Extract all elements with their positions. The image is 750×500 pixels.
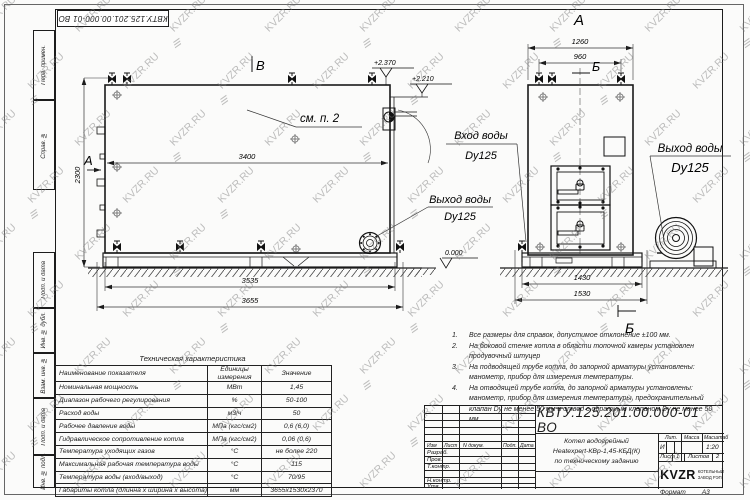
spec-table-cell: °С [208, 471, 262, 484]
spec-table-row: Номинальная мощностьМВт1,45 [56, 382, 332, 395]
company-name-line: ЗАВОД РЭП [698, 475, 724, 480]
crosshair-mark-icon [112, 208, 122, 218]
spec-table-cell: Гидравлическое сопротивление котла [56, 433, 208, 446]
tb-col-podp: Подп. [503, 443, 517, 449]
spec-table-cell: Максимальная рабочая температура воды [56, 458, 208, 471]
section-label-b-top: Б [592, 60, 600, 74]
tb-lit-value: И [660, 444, 665, 451]
spec-table-cell: Габариты котла (длинна х ширина х высота… [56, 484, 208, 497]
dim-3400: 3400 [239, 152, 257, 161]
elevation-mark-step: +2.210 [410, 76, 452, 97]
dim-960: 960 [574, 52, 587, 61]
spec-table-body: Номинальная мощностьМВт1,45Диапазон рабо… [56, 382, 332, 497]
company-logo: KVZR КОТЕЛЬНЫЙ ЗАВОД РЭП [660, 463, 722, 486]
tb-role-tkontr: Т.контр. [427, 464, 450, 470]
product-name: Котел водогрейный Heatexpert-КВр-1,45-КБ… [537, 435, 656, 469]
inlet-pipe-valve-icon [519, 241, 526, 253]
dim-1260: 1260 [572, 37, 590, 46]
title-block: КВТУ.125.201.00.000-01 ВО Котел водогрей… [424, 405, 723, 488]
spec-table-cell: м3/ч [208, 407, 262, 420]
dim-1430: 1430 [574, 273, 592, 282]
spec-table-cell: Температура воды (вход/выход) [56, 471, 208, 484]
spec-table-cell: мм [208, 484, 262, 497]
spec-table-cell: МПа (кгс/см2) [208, 420, 262, 433]
spec-table-cell: 70/95 [262, 471, 332, 484]
blower-fan-icon [650, 218, 716, 269]
note-number: 1. [452, 331, 469, 342]
see-note-label: см. п. 2 [300, 113, 340, 125]
spec-table-row: Температура уходящих газов°Сне более 220 [56, 445, 332, 458]
spec-table-cell: 115 [262, 458, 332, 471]
note-number: 3. [452, 363, 469, 384]
front-inlet-dn: Dy125 [465, 150, 498, 162]
spec-table-cell: Температура уходящих газов [56, 445, 208, 458]
dim-2300: 2300 [73, 166, 82, 185]
tb-sheets-value: 2 [716, 454, 719, 460]
tb-role-razrab: Разраб. [427, 450, 448, 456]
drain-valve-icon [177, 241, 184, 253]
crosshair-mark-icon [290, 134, 300, 144]
format-value: А3 [702, 489, 710, 496]
spec-table-cell: Диапазон рабочего регулирования [56, 394, 208, 407]
tb-col-data: Дата [520, 443, 534, 449]
spec-table-cell: 0,6 (6,0) [262, 420, 332, 433]
spec-table-title: Техническая характеристика [55, 354, 330, 363]
product-name-line: Heatexpert-КВр-1,45-КБД(К) [553, 447, 640, 457]
spec-table: Наименование показателя Единицы измерени… [55, 365, 332, 497]
format-note: Формат А3 [660, 489, 745, 496]
valve-icon [124, 73, 131, 85]
front-view-label-a: А [573, 12, 584, 29]
view-label-v: В [256, 58, 265, 73]
tb-role-utv: Утв. [427, 484, 440, 490]
drain-valve-icon [258, 241, 265, 253]
note-number: 2. [452, 342, 469, 363]
upper-door [551, 166, 610, 205]
valve-icon [549, 73, 556, 85]
company-name: КОТЕЛЬНЫЙ ЗАВОД РЭП [698, 469, 724, 480]
product-name-line: Котел водогрейный [564, 437, 629, 447]
spec-table-row: Максимальная рабочая температура воды°С1… [56, 458, 332, 471]
front-outlet-dn: Dy125 [671, 160, 709, 175]
spec-table-row: Расход водым3/ч50 [56, 407, 332, 420]
front-inlet-label: Вход воды [454, 130, 507, 142]
crosshair-mark-icon [615, 92, 625, 102]
product-name-line: по техническому заданию [555, 457, 639, 467]
drain-valve-icon [397, 241, 404, 253]
spec-table-cell: Рабочее давление воды [56, 420, 208, 433]
drawing-sheet: { "watermark": {"text": "KVZR.RU", "logo… [0, 0, 750, 500]
valve-icon [618, 73, 625, 85]
dim-3535: 3535 [242, 276, 260, 285]
spec-table-cell: 3655х1530х2370 [262, 484, 332, 497]
valve-icon [289, 73, 296, 85]
tb-col-docnum: N докум. [463, 443, 484, 449]
spec-table-cell: °С [208, 445, 262, 458]
crosshair-mark-icon [112, 162, 122, 172]
spec-table-cell: 50 [262, 407, 332, 420]
side-outlet-label: Выход воды [429, 194, 491, 206]
zero-level-mark: 0.000 [440, 250, 478, 268]
valve-icon [109, 73, 116, 85]
spec-table-cell: % [208, 394, 262, 407]
spec-col-header: Единицы измерения [208, 366, 262, 382]
spec-table-cell: °С [208, 458, 262, 471]
crosshair-mark-icon [112, 90, 122, 100]
lower-door [551, 205, 610, 250]
note-text: На подводящей трубе котла, до запорной а… [469, 363, 720, 384]
spec-table-cell: 1,45 [262, 382, 332, 395]
note-text: Все размеры для справок, допустимое откл… [469, 331, 671, 342]
spec-table-row: Гидравлическое сопротивление котлаМПа (к… [56, 433, 332, 446]
elev-2210: +2.210 [412, 76, 434, 83]
tb-col-list: Лист [444, 443, 457, 449]
format-label: Формат [660, 489, 686, 496]
tb-role-prov: Пров. [427, 457, 442, 463]
kvzr-logo-text: KVZR [660, 468, 696, 482]
crosshair-mark-icon [616, 242, 626, 252]
tb-sheets-label: Листов [688, 454, 709, 460]
tb-mass-label: Масса [684, 435, 699, 441]
tb-sheet-label: Лист [660, 454, 675, 460]
spec-table-row: Габариты котла (длинна х ширина х высота… [56, 484, 332, 497]
drawing-designation: КВТУ.125.201.00.000-01 ВО [537, 408, 722, 431]
valve-icon [536, 73, 543, 85]
tb-sheet-value: 1 [676, 454, 679, 460]
spec-table-cell: 50-100 [262, 394, 332, 407]
tb-scale-value: 1:20 [706, 444, 719, 451]
note-item: 2.На боковой стенке котла в области топо… [452, 342, 720, 363]
crosshair-mark-icon [535, 242, 545, 252]
tb-col-izm: Изм [427, 443, 437, 449]
elev-2370: +2.370 [374, 60, 396, 67]
spec-table-cell: Расход воды [56, 407, 208, 420]
spec-col-header: Значение [262, 366, 332, 382]
spec-table-cell: МВт [208, 382, 262, 395]
spec-col-header: Наименование показателя [56, 366, 208, 382]
dim-1530: 1530 [574, 289, 592, 298]
front-view: А 1260 960 Б [408, 12, 731, 336]
elevation-mark-top: +2.370 [372, 60, 414, 85]
front-outlet-label: Выход воды [658, 143, 723, 155]
spec-table-cell: Номинальная мощность [56, 382, 208, 395]
note-text: На боковой стенке котла в области топочн… [469, 342, 720, 363]
valve-icon [369, 73, 376, 85]
crosshair-mark-icon [538, 92, 548, 102]
spec-table-cell: МПа (кгс/см2) [208, 433, 262, 446]
side-outlet-dn: Dy125 [444, 211, 477, 223]
note-item: 1.Все размеры для справок, допустимое от… [452, 331, 720, 342]
drain-valve-icon [114, 241, 121, 253]
level-zero-label: 0.000 [445, 250, 463, 257]
tb-lit-label: Лит. [665, 435, 677, 441]
note-item: 3.На подводящей трубе котла, до запорной… [452, 363, 720, 384]
dim-3655: 3655 [242, 296, 260, 305]
spec-table-row: Рабочее давление водыМПа (кгс/см2)0,6 (6… [56, 420, 332, 433]
spec-table-cell: 0,06 (0,6) [262, 433, 332, 446]
spec-table-cell: не более 220 [262, 445, 332, 458]
tb-scale-label: Масштаб [704, 435, 728, 441]
spec-table-row: Диапазон рабочего регулирования%50-100 [56, 394, 332, 407]
view-label-a: А [83, 153, 93, 168]
company-name-line: КОТЕЛЬНЫЙ [698, 469, 724, 474]
spec-table-row: Температура воды (вход/выход)°С70/95 [56, 471, 332, 484]
